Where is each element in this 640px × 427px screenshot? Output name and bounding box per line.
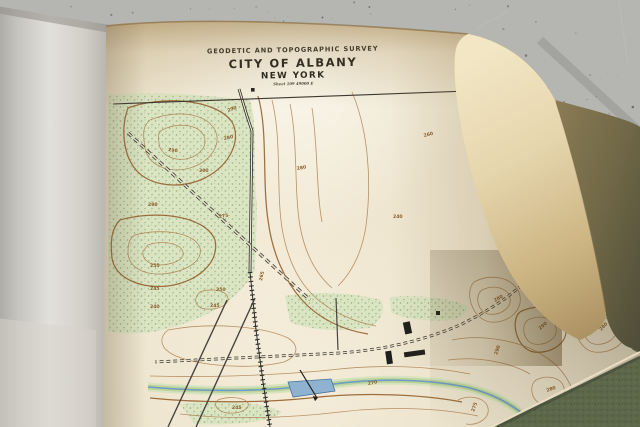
paper-roll: [0, 6, 116, 427]
contour-label: 240: [150, 304, 160, 310]
contour-label: 280: [148, 202, 158, 208]
contour-label: 245: [232, 405, 242, 411]
contour-label: 300: [199, 168, 209, 174]
contour-label: 250: [216, 287, 226, 293]
photo-of-topographic-map: 50000 E × 290280290300280275280255265245…: [0, 0, 640, 427]
left-edge-shade: [104, 24, 146, 427]
contour-label: 245: [210, 303, 220, 309]
contour-label: 255: [150, 263, 160, 269]
contour-label: 245: [150, 286, 160, 292]
